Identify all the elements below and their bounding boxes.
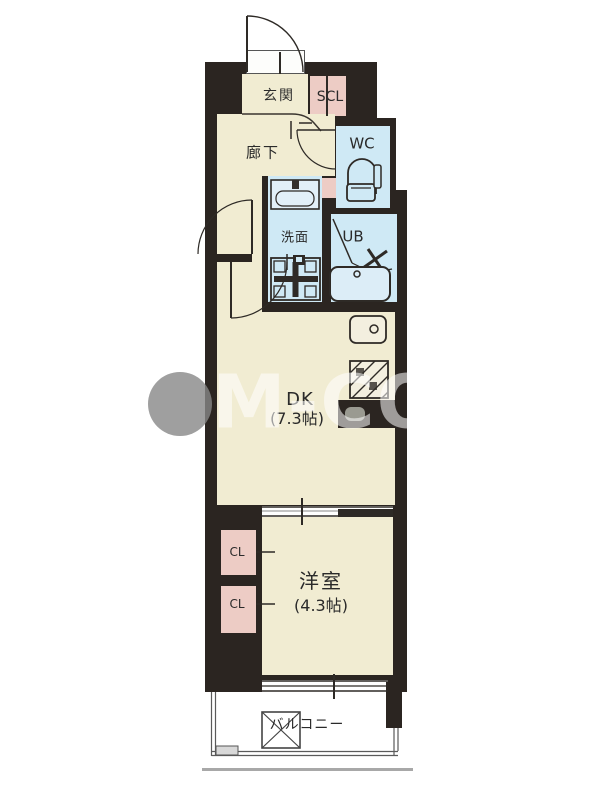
cl1-label: CL xyxy=(229,546,244,558)
western-label: 洋室 xyxy=(299,571,343,591)
ub-label: UB xyxy=(342,230,363,245)
stove-icon xyxy=(350,361,388,398)
dk-size-label: (7.3帖) xyxy=(270,411,324,427)
balcony-window-icon xyxy=(262,674,388,699)
watermark-disc-icon xyxy=(148,372,212,436)
kitchen-sink-icon xyxy=(350,316,386,343)
floorplan: 玄関 SCL 廊下 WC 洗面 UB DK (7.3帖) CL CL 洋室 (4… xyxy=(0,0,600,800)
senmen-label: 洗面 xyxy=(281,232,309,245)
genkan-label: 玄関 xyxy=(263,89,295,103)
bathtub-icon xyxy=(330,267,390,301)
toilet-icon xyxy=(347,159,381,201)
wc-door-swing-icon xyxy=(291,121,336,169)
washbasin-icon xyxy=(271,180,319,209)
washing-machine-pan-icon xyxy=(271,255,320,300)
hallway-label: 廊下 xyxy=(246,146,280,161)
dk-label: DK xyxy=(286,391,314,409)
scl-label: SCL xyxy=(317,90,343,104)
wc-label: WC xyxy=(349,137,374,152)
western-size-label: (4.3帖) xyxy=(294,598,348,614)
balcony-drain xyxy=(216,746,238,755)
entrance-door-swing-icon xyxy=(247,16,303,74)
cl2-label: CL xyxy=(229,598,244,610)
hallway-door-swing-icon xyxy=(198,200,252,254)
sliding-door-icon xyxy=(262,498,393,525)
balcony-label: バルコニー xyxy=(270,718,345,732)
